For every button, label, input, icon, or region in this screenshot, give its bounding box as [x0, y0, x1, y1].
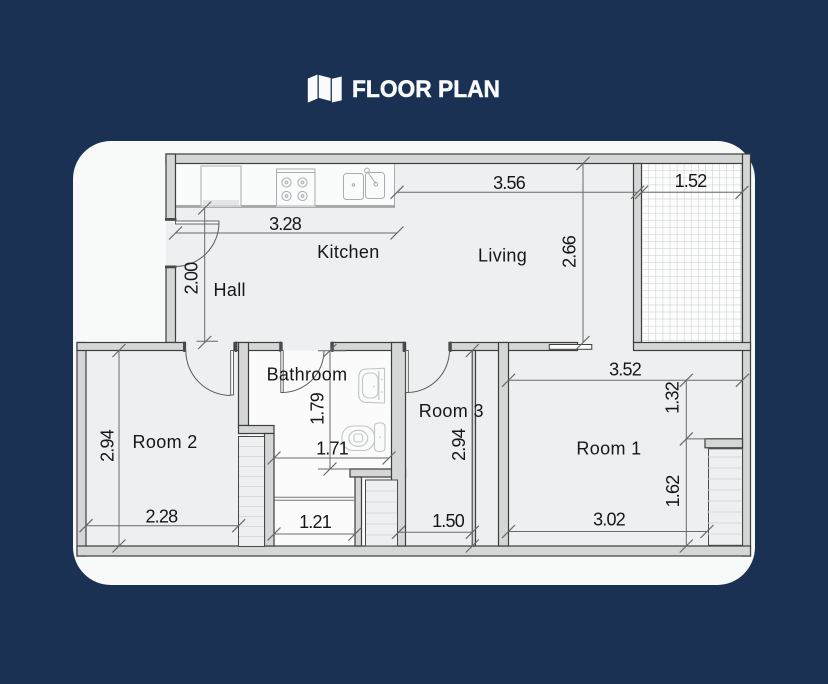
svg-text:1.52: 1.52: [675, 171, 708, 191]
svg-text:3.56: 3.56: [493, 173, 526, 193]
svg-text:1.32: 1.32: [662, 381, 682, 414]
svg-text:2.28: 2.28: [145, 507, 178, 527]
svg-text:2.94: 2.94: [97, 429, 117, 462]
svg-text:1.50: 1.50: [432, 511, 465, 531]
svg-text:Room 1: Room 1: [576, 439, 641, 459]
svg-text:3.52: 3.52: [609, 360, 642, 380]
svg-text:3.02: 3.02: [593, 510, 626, 530]
svg-text:3.28: 3.28: [269, 214, 302, 234]
svg-text:Bathroom: Bathroom: [267, 364, 348, 384]
svg-text:2.94: 2.94: [449, 428, 469, 461]
svg-text:2.00: 2.00: [182, 262, 202, 295]
svg-text:Living: Living: [478, 246, 527, 266]
svg-text:FLOOR PLAN: FLOOR PLAN: [352, 76, 500, 103]
svg-text:1.71: 1.71: [316, 439, 349, 459]
svg-text:Kitchen: Kitchen: [317, 242, 380, 262]
svg-text:1.79: 1.79: [307, 392, 327, 425]
svg-text:2.66: 2.66: [559, 235, 579, 268]
svg-text:Hall: Hall: [213, 280, 245, 300]
svg-text:1.21: 1.21: [299, 512, 332, 532]
svg-text:Room 3: Room 3: [419, 401, 484, 421]
svg-text:Room 2: Room 2: [133, 432, 198, 452]
svg-text:1.62: 1.62: [663, 475, 683, 508]
